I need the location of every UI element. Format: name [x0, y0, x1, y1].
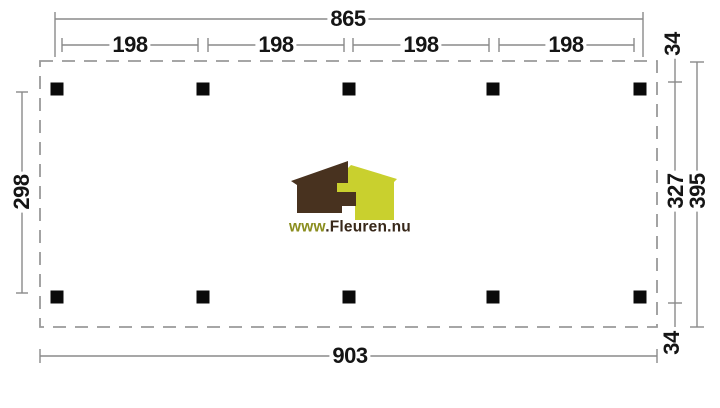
dim-label-right-overhang-bottom: 34 — [661, 328, 683, 357]
post — [634, 291, 647, 304]
post — [343, 291, 356, 304]
post — [51, 83, 64, 96]
dim-label-bay-4: 198 — [545, 34, 586, 56]
logo-url-prefix: www — [289, 218, 325, 235]
logo-url-suffix: .Fleuren.nu — [325, 218, 411, 235]
dim-label-bay-1: 198 — [109, 34, 150, 56]
dim-label-bay-2: 198 — [255, 34, 296, 56]
dim-label-right-total-depth: 395 — [687, 170, 709, 211]
logo-url: www.Fleuren.nu — [289, 219, 411, 235]
post — [197, 291, 210, 304]
dim-label-bottom-total: 903 — [329, 345, 370, 367]
post — [487, 83, 500, 96]
fleuren-logo-mark — [291, 161, 397, 220]
dim-label-bay-3: 198 — [400, 34, 441, 56]
post — [634, 83, 647, 96]
dim-label-right-inner-depth: 327 — [665, 170, 687, 211]
post — [487, 291, 500, 304]
post — [51, 291, 64, 304]
floor-plan: 865 198 198 198 198 903 298 34 327 395 3… — [0, 0, 720, 408]
post — [197, 83, 210, 96]
dim-label-top-total: 865 — [327, 8, 368, 30]
dim-label-right-overhang-top: 34 — [662, 29, 684, 58]
dim-label-left-depth: 298 — [11, 171, 33, 212]
post — [343, 83, 356, 96]
